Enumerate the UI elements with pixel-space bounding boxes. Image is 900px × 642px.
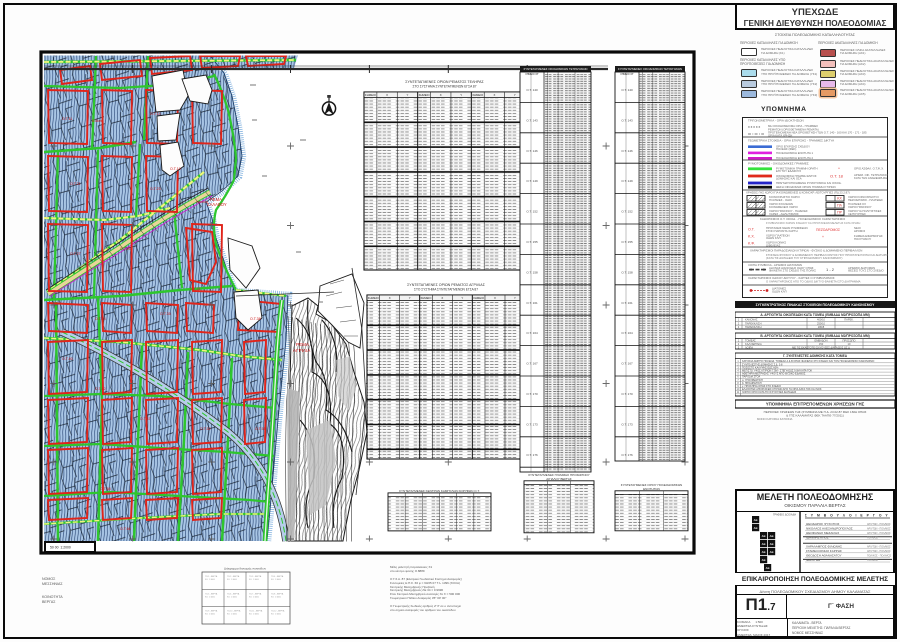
svg-text:Ο.Τ. 155: Ο.Τ. 155: [526, 240, 538, 244]
svg-text:Σ Υ Μ Β Ο Υ Λ Ο Ι Ε Ρ Γ Ο Υ: Σ Υ Μ Β Ο Υ Λ Ο Ι Ε Ρ Γ Ο Υ: [805, 513, 889, 517]
svg-text:Π1.10 - ΒΕΡΓΑ: Π1.10 - ΒΕΡΓΑ: [227, 610, 241, 613]
svg-text:ΠΡ: ΠΡ: [837, 211, 842, 215]
svg-text:KX: KX: [837, 197, 842, 201]
svg-text:ΟΡΙΟ ΑΣΦΑΛ. Ο.Τ./Κ.Χ.: ΟΡΙΟ ΑΣΦΑΛ. Ο.Τ./Κ.Χ.: [854, 167, 884, 171]
svg-text:Y: Y: [514, 93, 516, 97]
svg-text:ΚΛ. 1:1000: ΚΛ. 1:1000: [227, 596, 238, 598]
svg-text:ΓΡΑΦΕΙΟ ΔΟΞΙΑΔΗ: ΓΡΑΦΕΙΟ ΔΟΞΙΑΔΗ: [773, 512, 796, 516]
svg-text:ΘΕΟΔΩΡΟΣ ΨΥΧΟΓΙΟΣ: ΘΕΟΔΩΡΟΣ ΨΥΧΟΓΙΟΣ: [806, 522, 840, 526]
svg-text:Ο.Τ. 143: Ο.Τ. 143: [621, 118, 633, 122]
svg-text:ΠΑΡΕΚ.: ΠΑΡΕΚ.: [844, 318, 854, 322]
svg-text:Y: Y: [514, 296, 516, 300]
svg-text:Ο.Τ. 170: Ο.Τ. 170: [621, 392, 633, 396]
svg-text:Ο.Τ. 146: Ο.Τ. 146: [621, 149, 633, 153]
svg-text:ΔΕ: ΔΕ: [762, 550, 766, 554]
svg-text:ΕΠΙ ΤΟΥ ΕΔΑΦΟΥΣ: ΕΠΙ ΤΟΥ ΕΔΑΦΟΥΣ: [776, 169, 801, 173]
svg-text:ΚΛ. 1:1000: ΚΛ. 1:1000: [271, 614, 282, 616]
svg-text:ΠΛ: ΠΛ: [837, 204, 842, 208]
svg-text:O.T.21: O.T.21: [70, 182, 81, 186]
svg-text:O.T.47: O.T.47: [140, 417, 151, 421]
svg-text:ΛΟΙΠΑ: ΛΟΙΠΑ: [745, 346, 753, 350]
svg-text:ΣΥΓΚΕΝΤΡΩΤΙΚΟΣ ΠΙΝΑΚΑΣ ΣΤΟΙΧ: ΣΥΓΚΕΝΤΡΩΤΙΚΟΣ ΠΙΝΑΚΑΣ ΣΤΟΙΧΕΙΩΝ ΠΟΛΕΟΔΟ…: [756, 303, 875, 307]
svg-text:ΑΡΧ/ΤΩΝ - ΠΟΛ/ΜΟΣ: ΑΡΧ/ΤΩΝ - ΠΟΛ/ΜΟΣ: [867, 550, 891, 553]
svg-text:ΚΑΘΟΡΙΣΜΟΣ Ο.Τ. ΟΙΚΟΔ. - ΠΟΛΕΟ: ΚΑΘΟΡΙΣΜΟΣ Ο.Τ. ΟΙΚΟΔ. - ΠΟΛΕΟΔΟΜΙΚΟΙ ΧΑ…: [760, 217, 845, 221]
svg-text:ΩΦΕΛΕΙΑΣ: ΩΦΕΛΕΙΑΣ: [766, 243, 781, 247]
svg-text:ΧΡΗΣΕΙΣ ΓΗΣ ΧΩΡΟΙ ΓΙΑ ΚΟΙΝΩΦΕΛ: ΧΡΗΣΕΙΣ ΓΗΣ ΧΩΡΟΙ ΓΙΑ ΚΟΙΝΩΦΕΛΕΙΣ & ΚΟΙΝ…: [746, 190, 850, 194]
svg-text:Ο.Τ. 167: Ο.Τ. 167: [621, 362, 633, 366]
svg-text:150: 150: [819, 342, 824, 346]
svg-text:Π1.1 - ΒΕΡΓΑ: Π1.1 - ΒΕΡΓΑ: [205, 575, 218, 578]
svg-text:ΘΕΣΗ ΟΙΚΟΔΟΜΗΣ ΟΡΙΩΝ ΓΡΑΜΜΗ ΚΤ: ΘΕΣΗ ΟΙΚΟΔΟΜΗΣ ΟΡΙΩΝ ΓΡΑΜΜΗ ΚΤΙΡΙΩΝ: [776, 185, 836, 189]
svg-text:X: X: [386, 93, 388, 97]
svg-text:250/10: 250/10: [817, 321, 825, 325]
svg-text:Ο.Τ.: Ο.Τ.: [748, 227, 755, 231]
svg-text:O.T.58: O.T.58: [100, 487, 111, 491]
svg-text:Ο.Τ. 164: Ο.Τ. 164: [621, 331, 633, 335]
svg-text:ΣΤΟ ΣΥΣΤΗΜΑ ΣΥΝΤΕΤΑΓΜΕΝΩΝ ΕΓΣΑ: ΣΤΟ ΣΥΣΤΗΜΑ ΣΥΝΤΕΤΑΓΜΕΝΩΝ ΕΓΣΑ 87: [414, 288, 478, 292]
svg-text:ΣΥΝΤΕΤΑΓΜΕΝΕΣ ΟΙΚΟΔΟΜΙΚΩΝ ΤΕΤΡ: ΣΥΝΤΕΤΑΓΜΕΝΕΣ ΟΙΚΟΔΟΜΙΚΩΝ ΤΕΤΡΑΓΩΝΩΝ: [524, 67, 588, 71]
svg-text:ΔΕ: ΔΕ: [770, 542, 774, 546]
svg-text:ΣΗΜΕΙΟ ΟΤ: ΣΗΜΕΙΟ ΟΤ: [525, 73, 539, 76]
svg-text:Γ. ΣΥΝΤΕΛΕΣΤΕΣ ΔΟΜΗΣΗΣ ΚΑΤΑ ΤΟ: Γ. ΣΥΝΤΕΛΕΣΤΕΣ ΔΟΜΗΣΗΣ ΚΑΤΑ ΤΟΜΕΑ: [783, 354, 848, 358]
svg-text:ΔΕ: ΔΕ: [762, 534, 766, 538]
svg-text:ΣΥΝΤΕΤΑΓΜΕΝΕΣ ΟΡΙΩΝ ΡΕΜΑΤΟΣ ΑΓ: ΣΥΝΤΕΤΑΓΜΕΝΕΣ ΟΡΙΩΝ ΡΕΜΑΤΟΣ ΑΓΡΙΛΙΑΣ: [407, 283, 486, 287]
svg-text:ΣΗΜΕΙΟ: ΣΗΜΕΙΟ: [365, 93, 377, 97]
svg-text:Y: Y: [461, 296, 463, 300]
svg-text:ΟΔΩΝ ΚΛΠ: ΟΔΩΝ ΚΛΠ: [766, 236, 781, 240]
svg-text:ΚΛ. 1:1000: ΚΛ. 1:1000: [205, 596, 216, 598]
svg-text:O.T.35: O.T.35: [160, 312, 171, 316]
svg-text:ΣΥΝΤΕΤΑΓΜΕΝΕΣ ΟΡΙΩΝ ΡΕΜΑΤΟΣ ΤΕ: ΣΥΝΤΕΤΑΓΜΕΝΕΣ ΟΡΙΩΝ ΡΕΜΑΤΟΣ ΤΕΛΗΡΑΣ: [405, 80, 484, 84]
svg-text:ΔΕ: ΔΕ: [762, 542, 766, 546]
svg-text:400/10: 400/10: [817, 318, 825, 322]
svg-text:ΣΗΜΕΙΟ: ΣΗΜΕΙΟ: [419, 93, 431, 97]
svg-text:Ο.Τ. 167: Ο.Τ. 167: [526, 362, 538, 366]
svg-text:Ο.Τ. 18: Ο.Τ. 18: [830, 173, 844, 178]
svg-text:ΑΡΧ/ΤΩΝ - ΠΟΛ/ΜΟΣ: ΑΡΧ/ΤΩΝ - ΠΟΛ/ΜΟΣ: [867, 527, 891, 530]
svg-text:ΘΕΟΔΟΣΗ ΑΘΑΝΑΣΑΤΟΥ: ΘΕΟΔΟΣΗ ΑΘΑΝΑΣΑΤΟΥ: [806, 554, 842, 558]
svg-text:O.T.27: O.T.27: [70, 252, 81, 256]
svg-text:O.T.52: O.T.52: [200, 427, 211, 431]
svg-text:O.T.40: O.T.40: [62, 357, 73, 361]
svg-text:ΑΓΡΙΛΙΑ: ΑΓΡΙΛΙΑ: [293, 348, 311, 353]
svg-text:Ο.Τ. 158: Ο.Τ. 158: [621, 270, 633, 274]
svg-text:50 00 1:2000: 50 00 1:2000: [50, 546, 71, 550]
svg-text:ΣΥΜΒΟΛΙΣΜΟΙ ΧΩΡΩΝ ΣΧΕΔΙΟΥ ΚΑΙ: ΣΥΜΒΟΛΙΣΜΟΙ ΧΩΡΩΝ ΣΧΕΔΙΟΥ ΚΑΙ ΠΡΟΤΑΣΕΩΝ …: [766, 221, 860, 225]
svg-text:O.T.23: O.T.23: [150, 187, 161, 191]
svg-text:ΦΑΡΙΣ ΩΒ: ΦΑΡΙΣ ΩΒ: [806, 558, 820, 562]
svg-text:ΚΛ. 1:1000: ΚΛ. 1:1000: [205, 579, 216, 581]
svg-text:ΡΕΜΑ: ΡΕΜΑ: [296, 342, 310, 347]
svg-text:O.T.19: O.T.19: [170, 167, 181, 171]
svg-text:ΑΡΧ/ΤΩΝ - ΠΟΛ/ΜΟΣ: ΑΡΧ/ΤΩΝ - ΠΟΛ/ΜΟΣ: [867, 545, 891, 548]
svg-text:ΣΗΜΕΙΟ: ΣΗΜΕΙΟ: [473, 296, 485, 300]
svg-text:ΣΗΜΕΙΟ ΟΤ: ΣΗΜΕΙΟ ΟΤ: [620, 73, 634, 76]
svg-text:Π1.7 - ΒΕΡΓΑ: Π1.7 - ΒΕΡΓΑ: [249, 592, 262, 595]
svg-text:Π1.6 - ΒΕΡΓΑ: Π1.6 - ΒΕΡΓΑ: [227, 592, 240, 595]
svg-text:ΔΕ: ΔΕ: [754, 526, 758, 530]
svg-text:ΚΛ. 1:1000: ΚΛ. 1:1000: [271, 596, 282, 598]
svg-text:Ο.Τ. 140: Ο.Τ. 140: [526, 88, 538, 92]
svg-text:ΛΟΙΠΟΙ ΟΡΟΙ ΚΑΤΑ ΤΙΣ ΙΣΧΥΟΥΣΕΣ: ΛΟΙΠΟΙ ΟΡΟΙ ΚΑΤΑ ΤΙΣ ΙΣΧΥΟΥΣΕΣ ΔΙΑΤΑΞΕΙΣ: [742, 391, 797, 394]
svg-text:ΦΑΙΝΕΤΑΙ ΣΤΟ ΣΧΕΔΙΟ ΤΗΣ ΠΟΛΗΣ: ΦΑΙΝΕΤΑΙ ΣΤΟ ΣΧΕΔΙΟ ΤΗΣ ΠΟΛΗΣ: [769, 269, 816, 273]
svg-text:X: X: [494, 296, 496, 300]
svg-text:Ο.Τ. 152: Ο.Τ. 152: [526, 210, 538, 214]
svg-text:ΟΡΙΑ ΚΑΤΑ ΧΡΗΣΗ: ΟΡΙΑ ΚΑΤΑ ΧΡΗΣΗ: [768, 133, 792, 137]
svg-text:ΣΤΑΜΕΛΛΟΝΙΑΣ ΣΑΡΡΗΣ: ΣΤΑΜΕΛΛΟΝΙΑΣ ΣΑΡΡΗΣ: [806, 549, 842, 553]
svg-text:Ο.Τ. 176: Ο.Τ. 176: [621, 453, 633, 457]
svg-text:ΚΛ. 1:1000: ΚΛ. 1:1000: [205, 614, 216, 616]
svg-text:O.T.33: O.T.33: [95, 317, 106, 321]
svg-text:& ΓΠΣ ΚΑΛΑΜΑΤΑΣ ΦΕΚ ΤΑΑΠΘ 77/: & ΓΠΣ ΚΑΛΑΜΑΤΑΣ ΦΕΚ ΤΑΑΠΘ 77/2011): [786, 413, 844, 417]
svg-text:ΚΛ. 1:1000: ΚΛ. 1:1000: [227, 614, 238, 616]
svg-text:ΣΤΟΝ ΠΑΡΟΝΤΑ ΧΑΡΤΗ: ΣΤΟΝ ΠΑΡΟΝΤΑ ΧΑΡΤΗ: [766, 229, 798, 233]
svg-text:ΚΛ. 1:1000: ΚΛ. 1:1000: [249, 614, 260, 616]
svg-text:ΣΥΝΤΕΤΑΓΜΕΝΕΣ ΟΙΚΟΔΟΜΙΚΩΝ ΤΕΤΡ: ΣΥΝΤΕΤΑΓΜΕΝΕΣ ΟΙΚΟΔΟΜΙΚΩΝ ΤΕΤΡΑΓΩΝΩΝ: [618, 67, 682, 71]
svg-text:ΚΛ. 1:1000: ΚΛ. 1:1000: [249, 596, 260, 598]
svg-text:ΘΕΟΦΑΝΗΣ ΜΕΖΑΙΛΗΣ: ΘΕΟΦΑΝΗΣ ΜΕΖΑΙΛΗΣ: [806, 531, 839, 535]
svg-text:ΣΗΜΕΙΟ: ΣΗΜΕΙΟ: [421, 296, 433, 300]
svg-text:ΧΑΡΑΛΑΜΠΟΣ ΦΙΛΙΩΝΗΣ: ΧΑΡΑΛΑΜΠΟΣ ΦΙΛΙΩΝΗΣ: [806, 544, 842, 548]
svg-text:ΕΜΒΑΔΟΝ: ΕΜΒΑΔΟΝ: [815, 339, 828, 343]
svg-text:ΚΛ. 1:1000: ΚΛ. 1:1000: [249, 579, 260, 581]
svg-text:ΚΑΝΟΝΑΣ: ΚΑΝΟΝΑΣ: [745, 318, 758, 322]
svg-text:Ο.Τ. 173: Ο.Τ. 173: [526, 422, 538, 426]
svg-text:ΧΑΡΑΚΤΗΡΙΣΜΟΙ ΠΑΡΑΔΟΣΙΑΚΩΝ ΚΤΙ: ΧΑΡΑΚΤΗΡΙΣΜΟΙ ΠΑΡΑΔΟΣΙΑΚΩΝ ΚΤΙΡΙΩΝ - ΦΥΣ…: [750, 248, 862, 252]
svg-text:ΣΤΟ ΣΥΣΤΗΜΑ ΣΥΝΤΕΤΑΓΜΕΝΩΝ ΕΓΣΑ: ΣΤΟ ΣΥΣΤΗΜΑ ΣΥΝΤΕΤΑΓΜΕΝΩΝ ΕΓΣΑ 87: [413, 85, 477, 89]
svg-text:Π1.2 - ΒΕΡΓΑ: Π1.2 - ΒΕΡΓΑ: [227, 575, 240, 578]
svg-text:X: X: [389, 296, 391, 300]
svg-text:ΔΕ: ΔΕ: [770, 550, 774, 554]
svg-text:(ΚΑΤΑ ΤΙΣ ΔΙΑΤΑΞΕΙΣ ΤΟΥ ΚΤΙΡΙΟ: (ΚΑΤΑ ΤΙΣ ΔΙΑΤΑΞΕΙΣ ΤΟΥ ΚΤΙΡΙΟΔΟΜΙΚΟΥ ΚΑ…: [766, 256, 843, 260]
svg-text:O.T.68: O.T.68: [200, 517, 211, 521]
svg-text:ΠΟΛΕΟΔΟΜΙΚΗ ΕΝΟΤΗΤΑ 2: ΠΟΛΕΟΔΟΜΙΚΗ ΕΝΟΤΗΤΑ 2: [776, 156, 814, 160]
svg-text:Ο.Τ. 161: Ο.Τ. 161: [526, 301, 538, 305]
svg-text:ΠΑΡΕΚΚΛΙΣΗ: ΠΑΡΕΚΚΛΙΣΗ: [745, 321, 762, 325]
svg-text:O.T.31: O.T.31: [190, 287, 201, 291]
svg-text:Κ.Χ.: Κ.Χ.: [748, 234, 755, 238]
svg-text:ΝΙΚΟΛΑΟΣ ΑΛΕΞΑΝΔΡΟΠΟΥΛΟΣ: ΝΙΚΟΛΑΟΣ ΑΛΕΞΑΝΔΡΟΠΟΥΛΟΣ: [806, 526, 853, 530]
svg-text:ΛΕΙΤΟΥΡΓΙΕΣ: ΛΕΙΤΟΥΡΓΙΕΣ: [848, 212, 866, 216]
svg-text:ΑΡΧ/ΤΩΝ - ΠΟΛ/ΜΟΣ: ΑΡΧ/ΤΩΝ - ΠΟΛ/ΜΟΣ: [867, 532, 891, 535]
svg-text:180/8: 180/8: [818, 325, 825, 329]
svg-text:ΚΛ. 1:1000: ΚΛ. 1:1000: [227, 579, 238, 581]
svg-text:Β. ΑΡΤΙΟΤΗΤΑ ΟΙΚΟΠΕΔΩΝ ΚΑΤΑ ΤΟ: Β. ΑΡΤΙΟΤΗΤΑ ΟΙΚΟΠΕΔΩΝ ΚΑΤΑ ΤΟΜΕΑ (ΕΜΒΑΔ…: [760, 334, 869, 338]
svg-text:ΣΗΜΕΙΟ: ΣΗΜΕΙΟ: [472, 93, 484, 97]
svg-text:ΜΕ ΤΙΣ ΕΚΑΣΤΟΤΕ ΙΣΧΥΟΥΣΕΣ ΔΙΑΤ: ΜΕ ΤΙΣ ΕΚΑΣΤΟΤΕ ΙΣΧΥΟΥΣΕΣ ΔΙΑΤΑΞΕΙΣ ΩΣ Δ: [792, 346, 850, 350]
svg-text:+: +: [822, 235, 824, 239]
svg-text:x x x x x: x x x x x: [748, 125, 761, 129]
svg-text:O.T.42: O.T.42: [95, 387, 106, 391]
svg-text:Ο.Τ. 149: Ο.Τ. 149: [526, 179, 538, 183]
svg-text:O.T.25: O.T.25: [120, 247, 131, 251]
svg-text:ΔΕ: ΔΕ: [754, 518, 758, 522]
svg-text:Ο.Τ. 170: Ο.Τ. 170: [526, 392, 538, 396]
svg-text:ΔΟΜΗΣΗΣ ΚΑΙ ΟΣΑ: ΔΟΜΗΣΗΣ ΚΑΙ ΟΣΑ: [776, 177, 802, 181]
svg-text:ΠΟΛ/ΚΟΣ - ΠΟΛ/ΜΟΣ: ΠΟΛ/ΚΟΣ - ΠΟΛ/ΜΟΣ: [867, 555, 891, 558]
svg-text:ΣΑΛΑΒΟΥ: ΣΑΛΑΒΟΥ: [207, 202, 227, 207]
svg-text:Π1.8 - ΒΕΡΓΑ: Π1.8 - ΒΕΡΓΑ: [271, 592, 284, 595]
svg-text:Διάγραμμα διανομής πινακίδων: Διάγραμμα διανομής πινακίδων: [224, 567, 266, 571]
svg-text:O.T.63: O.T.63: [170, 497, 181, 501]
svg-text:ΠΡΟΣΩΠΟ: ΠΡΟΣΩΠΟ: [842, 339, 855, 343]
svg-text:Π1.11 - ΒΕΡΓΑ: Π1.11 - ΒΕΡΓΑ: [249, 610, 263, 613]
svg-text:+: +: [838, 167, 840, 171]
svg-text:Ο.Τ. 158: Ο.Τ. 158: [526, 270, 538, 274]
svg-text:Π1.4 - ΒΕΡΓΑ: Π1.4 - ΒΕΡΓΑ: [271, 575, 284, 578]
svg-text:ΚΑΤΑ ΤΗΝ ΑΝΑΘΕΩΡΗΣΗ: ΚΑΤΑ ΤΗΝ ΑΝΑΘΕΩΡΗΣΗ: [854, 176, 887, 180]
svg-text:Ο ΧΑΡΑΚΤΗΡΙΣΜΟΣ ΑΠΟ ΤΟ ΟΔΙΚΟ Δ: Ο ΧΑΡΑΚΤΗΡΙΣΜΟΣ ΑΠΟ ΤΟ ΟΔΙΚΟ ΔΙΚΤΥΟ ΦΑΙΝ…: [766, 279, 861, 283]
svg-text:Ο.Τ. 161: Ο.Τ. 161: [621, 301, 633, 305]
svg-text:O.T.11: O.T.11: [62, 117, 72, 121]
svg-text:ΤΟΠ/ΦΟΣ: ΤΟΠ/ΦΟΣ: [867, 537, 878, 540]
svg-text:ΠΑΡΕΚΚΛΙΣΗ: ΠΑΡΕΚΚΛΙΣΗ: [745, 325, 762, 329]
svg-text:ΤΟΜΕΑΣ: ΤΟΜΕΑΣ: [745, 339, 756, 343]
svg-text:ΧΑΡΕΣ - ΑΘΛΗΤΙΣΜΟΣ: ΧΑΡΕΣ - ΑΘΛΗΤΙΣΜΟΣ: [769, 212, 799, 216]
svg-text:Ο.Τ. 149: Ο.Τ. 149: [621, 179, 633, 183]
svg-text:Y: Y: [460, 93, 462, 97]
svg-text:X: X: [493, 93, 495, 97]
svg-text:Y: Y: [409, 296, 411, 300]
svg-text:ΚΑΛΛΙΕΡΓΕΙΑ: ΚΑΛΛΙΕΡΓΕΙΑ: [745, 342, 762, 346]
svg-text:Π1.12 - ΒΕΡΓΑ: Π1.12 - ΒΕΡΓΑ: [271, 610, 285, 613]
svg-text:ΠΟΛΕΟΔΟΜΙΚΗ ΕΝΟΤΗΤΑ 1: ΠΟΛΕΟΔΟΜΙΚΗ ΕΝΟΤΗΤΑ 1: [776, 151, 814, 155]
svg-text:O.T.55: O.T.55: [255, 427, 266, 431]
svg-text:1 - 2: 1 - 2: [826, 267, 835, 272]
svg-text:ΘΕΣΕΙΣ ΤΟΥΣ ΣΤΟ ΣΧΕΔΙΟ: ΘΕΣΕΙΣ ΤΟΥΣ ΣΤΟ ΣΧΕΔΙΟ: [848, 269, 884, 273]
svg-text:ΤΡΙΓΩΝΟΜΕΤΡΙΚΑ - ΟΡΙΑ ΙΔΙΟΚΤΗΣ: ΤΡΙΓΩΝΟΜΕΤΡΙΚΑ - ΟΡΙΑ ΙΔΙΟΚΤΗΣΙΩΝ: [748, 119, 804, 123]
svg-text:Ο.Τ. 155: Ο.Τ. 155: [621, 240, 633, 244]
svg-text:ΔΕ: ΔΕ: [766, 566, 770, 570]
svg-text:ΠΕΖΟΔΡΟΜΟΣ: ΠΕΖΟΔΡΟΜΟΣ: [816, 228, 840, 232]
svg-text:Κ.Φ.: Κ.Φ.: [748, 242, 755, 246]
svg-text:ΡΥΜΟΤΟΜΙΚΕΣ - ΟΙΚΟΔΟΜΙΚΕΣ ΓΡΑΜ: ΡΥΜΟΤΟΜΙΚΕΣ - ΟΙΚΟΔΟΜΙΚΕΣ ΓΡΑΜΜΕΣ: [748, 161, 809, 165]
svg-text:Ο.Τ. 173: Ο.Τ. 173: [621, 422, 633, 426]
svg-text:Α. ΑΡΤΙΟΤΗΤΑ ΟΙΚΟΠΕΔΩΝ ΚΑΤΑ ΤΟ: Α. ΑΡΤΙΟΤΗΤΑ ΟΙΚΟΠΕΔΩΝ ΚΑΤΑ ΤΟΜΕΑ (ΕΜΒΑΔ…: [760, 313, 869, 317]
svg-text:ΔΕ: ΔΕ: [762, 558, 766, 562]
svg-text:Ο.Τ. 146: Ο.Τ. 146: [526, 149, 538, 153]
svg-text:0.5km: 0.5km: [92, 119, 102, 123]
svg-text:ΟΔΩΝ ΚΛΠ: ΟΔΩΝ ΚΛΠ: [772, 289, 787, 293]
svg-text:O.T.38: O.T.38: [250, 317, 261, 321]
svg-text:Ο.Τ. 143: Ο.Τ. 143: [526, 118, 538, 122]
svg-text:ΔΡΟΜΟΙ: ΔΡΟΜΟΙ: [854, 229, 865, 233]
svg-text:ΙΩΑΝΝΗΣ ΚΠΟΣ: ΙΩΑΝΝΗΣ ΚΠΟΣ: [806, 536, 829, 540]
svg-text:ΔΕ: ΔΕ: [770, 534, 774, 538]
svg-text:ΠΟΛΥΓΩΝΟΥ: ΠΟΛΥΓΩΝΟΥ: [854, 237, 871, 241]
svg-text:ΑΡΧ/ΤΩΝ - ΠΟΛ/ΜΟΣ: ΑΡΧ/ΤΩΝ - ΠΟΛ/ΜΟΣ: [867, 523, 891, 526]
svg-text:ΓΕΩΜΕΤΡΙΚΑ ΣΤΟΙΧΕΙΑ - ΟΡΙΑ ΕΓΚ: ΓΕΩΜΕΤΡΙΚΑ ΣΤΟΙΧΕΙΑ - ΟΡΙΑ ΕΓΚΡΙΣΗΣ - ΓΡ…: [748, 138, 834, 142]
svg-text:ΤΟΠ/ΦΟΣ: ΤΟΠ/ΦΟΣ: [867, 559, 878, 562]
svg-text:ΣΗΜΕΙΟ: ΣΗΜΕΙΟ: [368, 296, 380, 300]
svg-text:X: X: [441, 296, 443, 300]
svg-text:O.T.14: O.T.14: [150, 112, 161, 116]
svg-text:Π1.5 - ΒΕΡΓΑ: Π1.5 - ΒΕΡΓΑ: [205, 592, 218, 595]
svg-text:ΚΛ. 1:1000: ΚΛ. 1:1000: [271, 579, 282, 581]
svg-text:Ο.Τ. 164: Ο.Τ. 164: [526, 331, 538, 335]
svg-text:ΥΠΟΜΝΗΜΑ ΕΠΙΤΡΕΠΟΜΕΝΩΝ ΧΡΗΣΕΩΝ: ΥΠΟΜΝΗΜΑ ΕΠΙΤΡΕΠΟΜΕΝΩΝ ΧΡΗΣΕΩΝ ΓΗΣ: [766, 402, 865, 407]
svg-text:ΜΟΝΟ ΚΑΤΟΙΚΙΑ ΚΑΤΟΙΚΙΑ: ΜΟΝΟ ΚΑΤΟΙΚΙΑ ΚΑΤΟΙΚΙΑ: [757, 417, 793, 420]
svg-text:Ο.Τ. 152: Ο.Τ. 152: [621, 210, 633, 214]
svg-text:Π1.3 - ΒΕΡΓΑ: Π1.3 - ΒΕΡΓΑ: [249, 575, 262, 578]
svg-text:Y: Y: [407, 93, 409, 97]
svg-text:X: X: [440, 93, 442, 97]
svg-text:Π1.9 - ΒΕΡΓΑ: Π1.9 - ΒΕΡΓΑ: [205, 610, 218, 613]
svg-text:Ο.Τ. 176: Ο.Τ. 176: [526, 453, 538, 457]
svg-text:Ο.Τ. 140: Ο.Τ. 140: [621, 88, 633, 92]
svg-text:O.T.66: O.T.66: [120, 527, 131, 531]
